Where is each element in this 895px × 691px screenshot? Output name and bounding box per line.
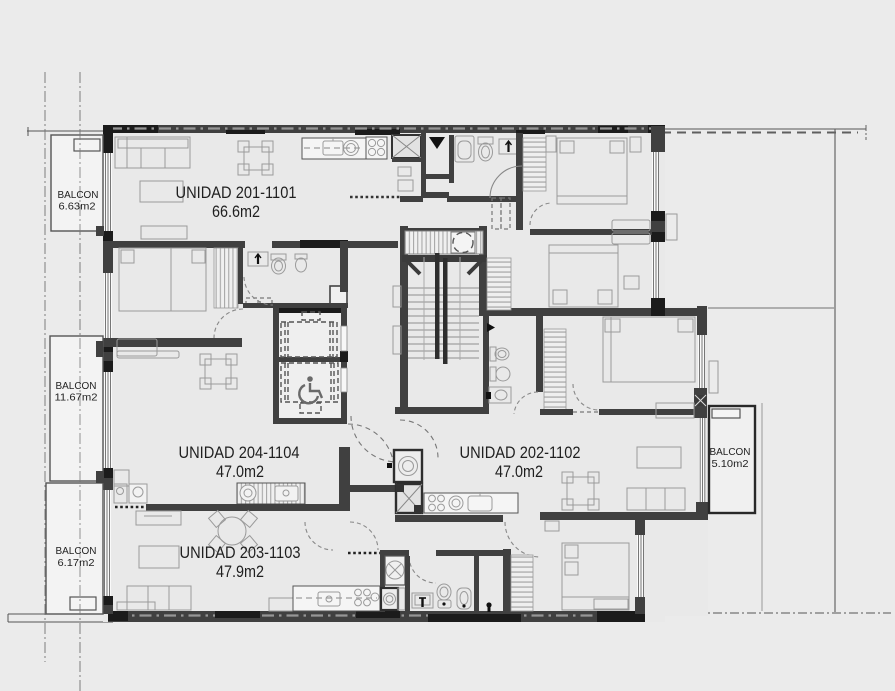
svg-text:BALCON: BALCON: [56, 380, 97, 392]
svg-text:47.0m2: 47.0m2: [216, 462, 264, 481]
svg-text:UNIDAD 202-1102: UNIDAD 202-1102: [460, 443, 581, 462]
svg-text:UNIDAD 204-1104: UNIDAD 204-1104: [179, 443, 300, 462]
svg-text:66.6m2: 66.6m2: [212, 202, 260, 221]
svg-text:UNIDAD 203-1103: UNIDAD 203-1103: [180, 543, 301, 562]
svg-text:6.63m2: 6.63m2: [59, 201, 96, 213]
svg-text:BALCON: BALCON: [710, 446, 751, 458]
svg-text:BALCON: BALCON: [56, 545, 97, 557]
svg-text:BALCON: BALCON: [58, 189, 99, 201]
svg-text:6.17m2: 6.17m2: [58, 557, 95, 569]
svg-text:47.0m2: 47.0m2: [495, 462, 543, 481]
svg-text:11.67m2: 11.67m2: [55, 392, 98, 404]
svg-text:5.10m2: 5.10m2: [712, 458, 749, 470]
svg-text:UNIDAD 201-1101: UNIDAD 201-1101: [176, 183, 297, 202]
svg-text:47.9m2: 47.9m2: [216, 562, 264, 581]
